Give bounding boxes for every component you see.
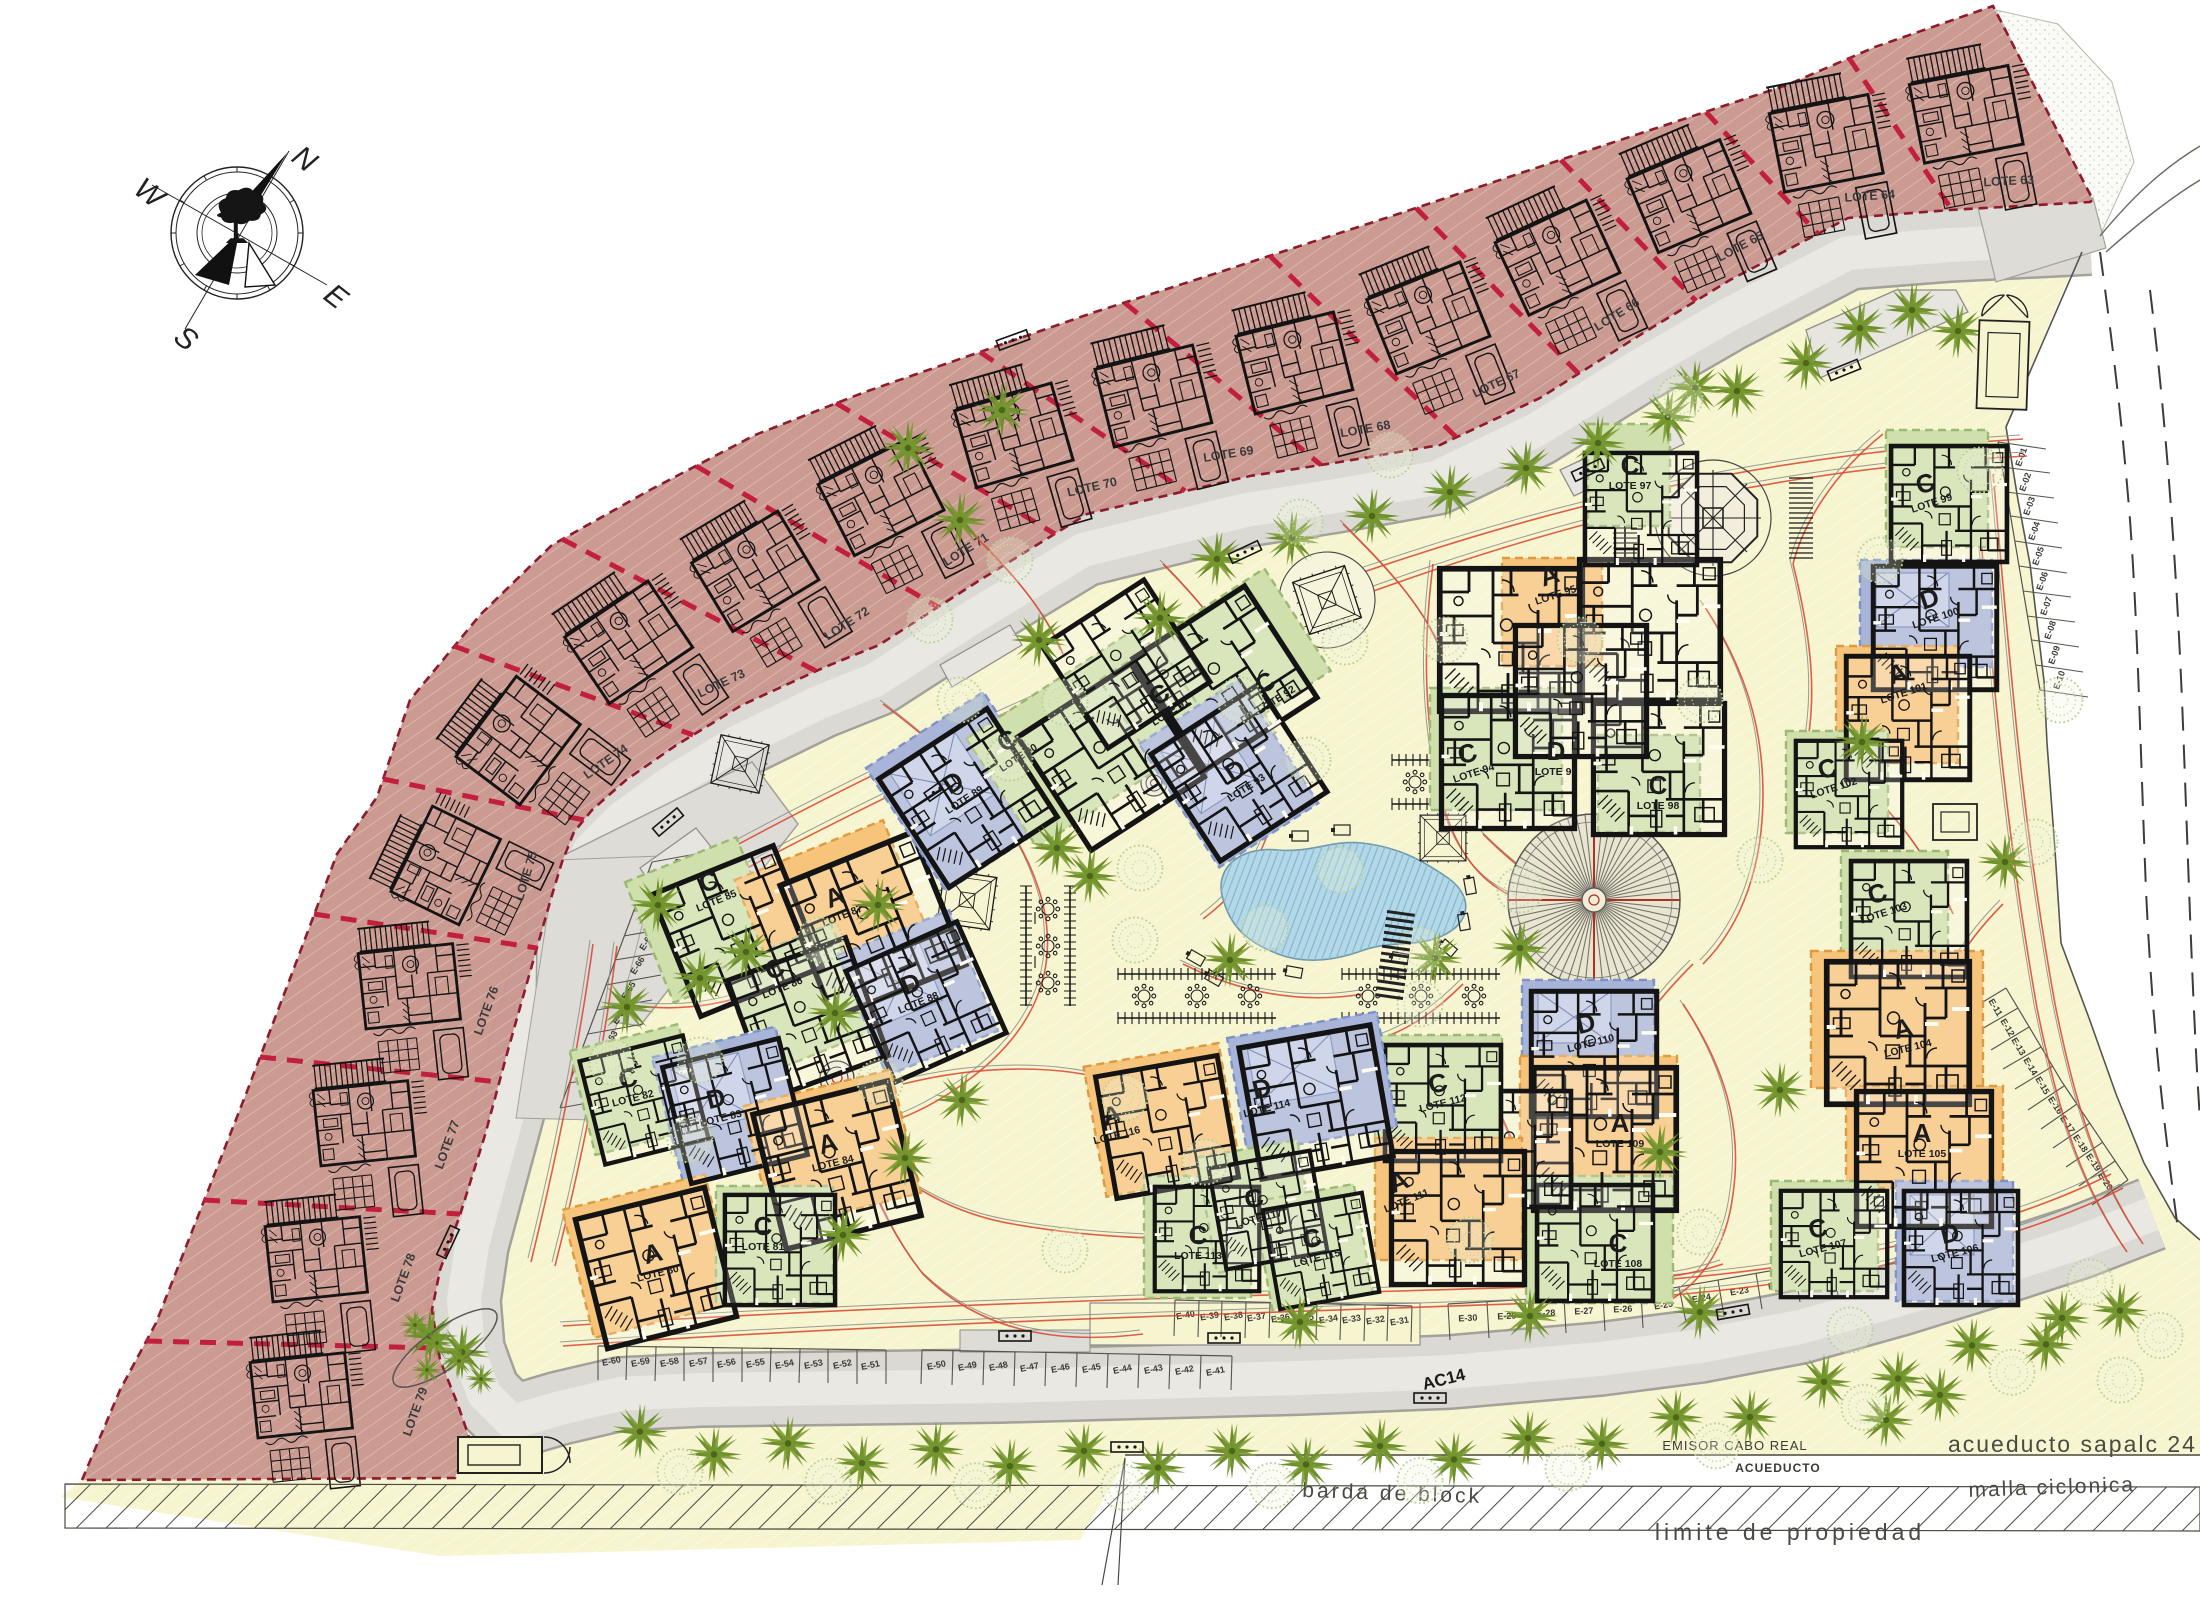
svg-text:E-03: E-03 <box>2021 495 2037 516</box>
svg-text:A: A <box>1611 1108 1630 1138</box>
svg-text:A: A <box>1913 1118 1932 1148</box>
svg-text:W: W <box>128 172 173 217</box>
svg-text:C: C <box>754 1211 773 1241</box>
svg-text:LOTE 63: LOTE 63 <box>1983 173 2034 190</box>
svg-text:E-09: E-09 <box>2046 644 2062 665</box>
svg-text:C: C <box>1621 450 1640 480</box>
svg-text:C: C <box>1189 1220 1208 1250</box>
svg-text:LOTE 109: LOTE 109 <box>1596 1138 1645 1150</box>
svg-text:E-05: E-05 <box>2030 545 2046 566</box>
svg-text:LOTE 97: LOTE 97 <box>1609 480 1652 492</box>
svg-text:C: C <box>1649 770 1668 800</box>
svg-text:LOTE 113: LOTE 113 <box>1174 1250 1222 1262</box>
svg-text:E-07: E-07 <box>2038 595 2054 616</box>
svg-text:ACUEDUCTO: ACUEDUCTO <box>1735 1461 1820 1475</box>
svg-text:E-08: E-08 <box>2042 619 2058 640</box>
svg-text:N: N <box>286 140 324 180</box>
svg-text:E-04: E-04 <box>2026 520 2042 541</box>
svg-text:E-02: E-02 <box>2017 471 2033 492</box>
svg-text:S: S <box>168 320 204 358</box>
svg-text:C: C <box>1609 1228 1628 1258</box>
svg-text:D: D <box>1547 736 1566 766</box>
svg-text:LOTE 98: LOTE 98 <box>1637 800 1680 812</box>
svg-text:acueducto sapalc 24 pul: acueducto sapalc 24 pul <box>1948 1431 2200 1457</box>
svg-text:LOTE 96: LOTE 96 <box>1535 766 1578 778</box>
svg-text:E-27: E-27 <box>1574 1306 1594 1317</box>
svg-text:LOTE 105: LOTE 105 <box>1898 1148 1947 1160</box>
svg-text:LOTE 81: LOTE 81 <box>742 1241 785 1253</box>
svg-text:E-30: E-30 <box>1458 1313 1478 1324</box>
svg-text:E-26: E-26 <box>1613 1304 1633 1315</box>
svg-text:E-06: E-06 <box>2034 570 2050 591</box>
svg-text:limite de propiedad: limite de propiedad <box>1655 1519 1925 1545</box>
svg-text:LOTE 108: LOTE 108 <box>1594 1258 1643 1270</box>
